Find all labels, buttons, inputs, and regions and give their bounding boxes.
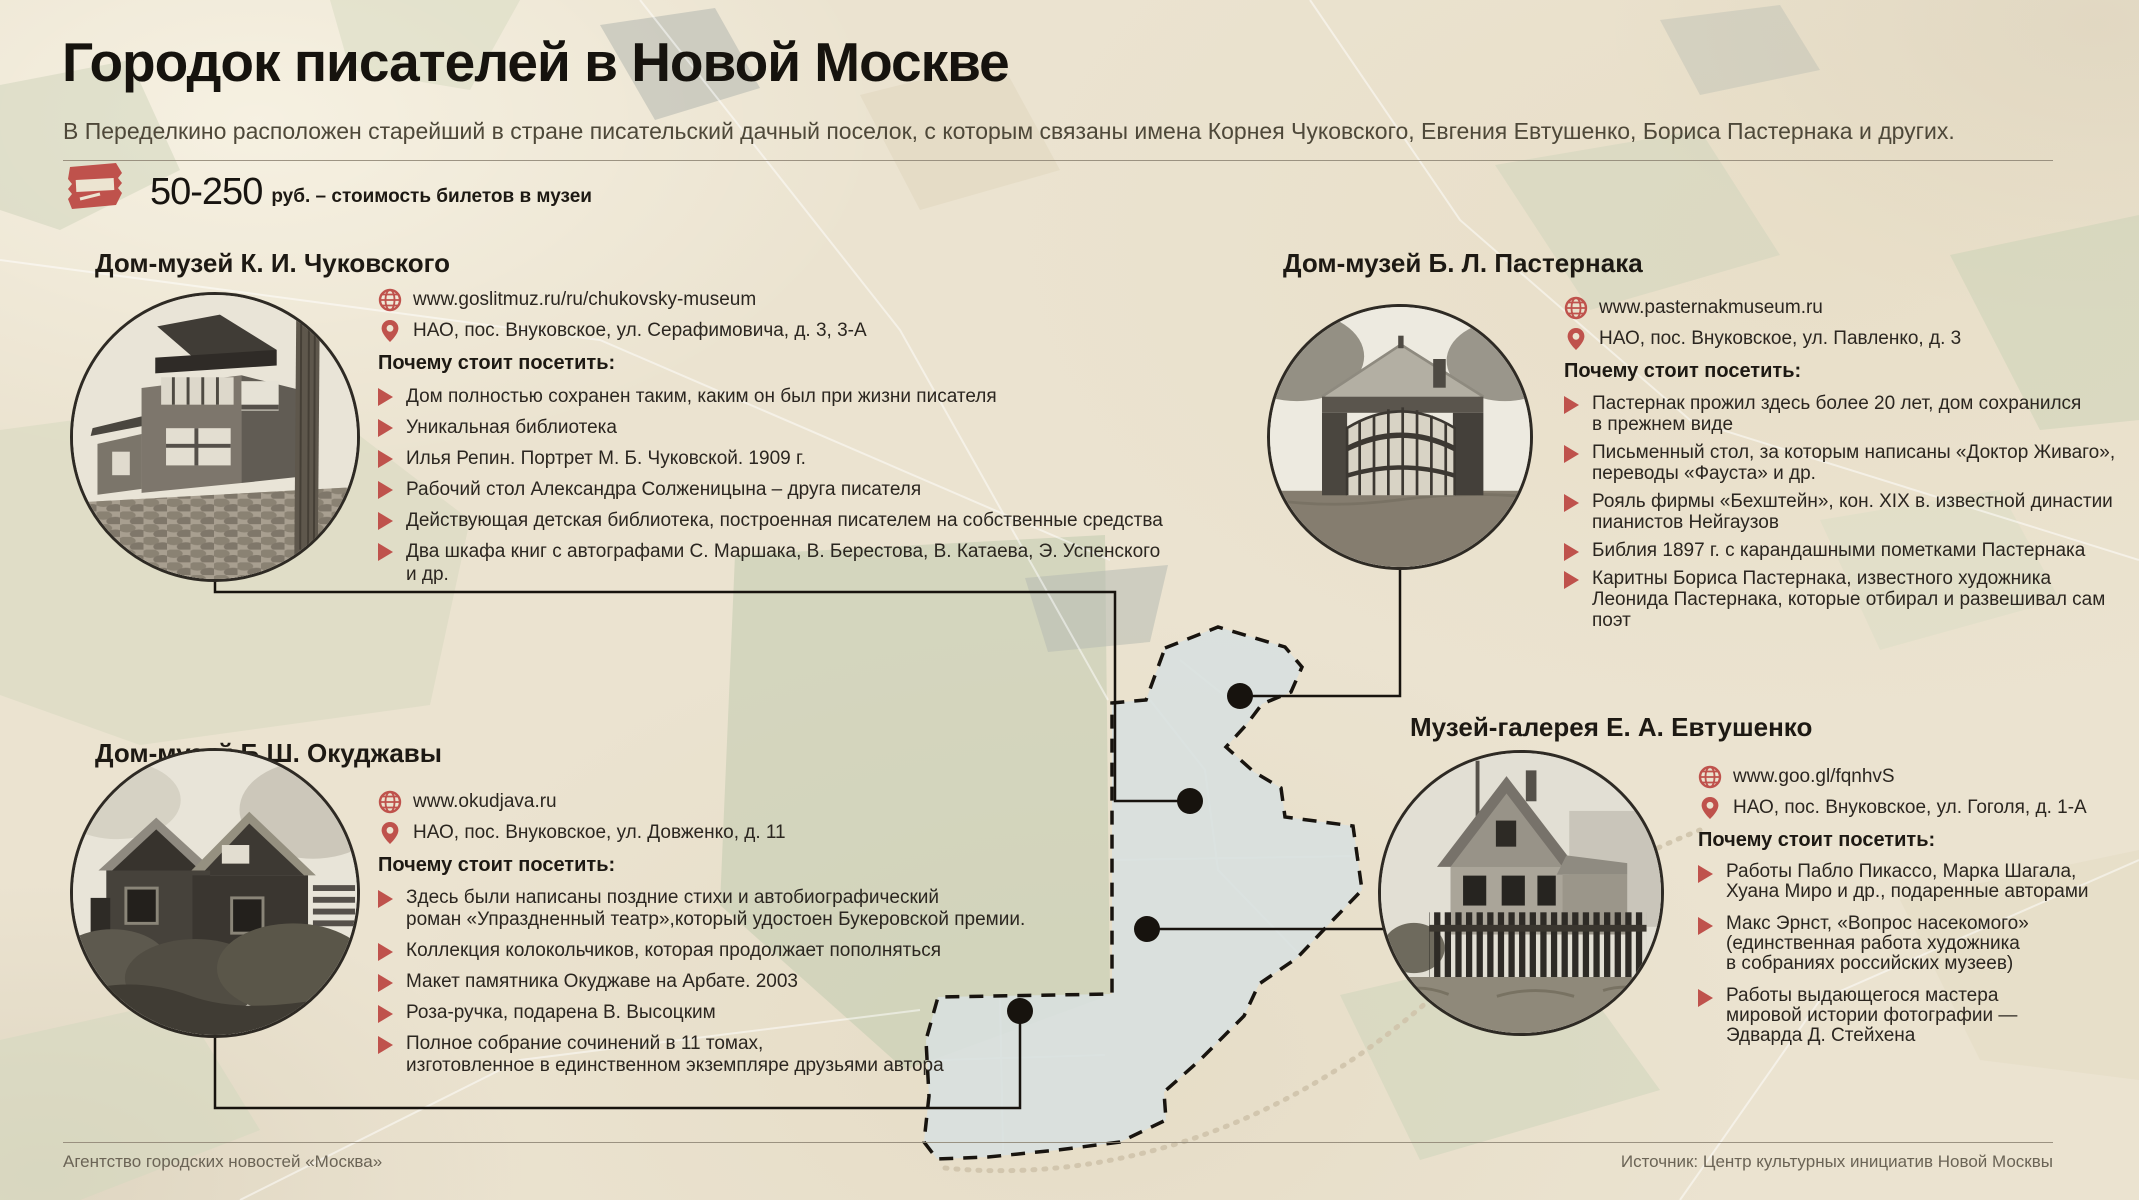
bullet-arrow-icon (1564, 571, 1579, 589)
why-visit-heading: Почему стоит посетить: (1698, 829, 2128, 852)
highlight-item: Работы выдающегося мастера мировой истор… (1698, 986, 2128, 1046)
ticket-price: 50-250 (150, 173, 262, 211)
chukovsky-house-photo (70, 292, 360, 582)
highlights-list: Работы Пабло Пикассо, Марка Шагала, Хуан… (1698, 862, 2128, 1046)
why-visit-heading: Почему стоит посетить: (1564, 360, 2124, 383)
pasternak-house-photo (1267, 304, 1533, 570)
highlight-item: Уникальная библиотека (378, 416, 1168, 439)
globe-icon (378, 790, 402, 814)
bullet-arrow-icon (1564, 543, 1579, 561)
ticket-icon (66, 161, 126, 211)
museum-website[interactable]: www.goo.gl/fqnhvS (1733, 766, 1895, 788)
bullet-arrow-icon (378, 943, 393, 961)
highlights-list: Здесь были написаны поздние стихи и авто… (378, 887, 1078, 1077)
globe-icon (1698, 765, 1722, 789)
bullet-arrow-icon (1564, 445, 1579, 463)
highlight-item: Работы Пабло Пикассо, Марка Шагала, Хуан… (1698, 862, 2128, 902)
globe-icon (378, 288, 402, 312)
bullet-arrow-icon (1698, 917, 1713, 935)
okudzhava-house-photo (70, 748, 360, 1038)
address-row: НАО, пос. Внуковское, ул. Серафимовича, … (378, 319, 1168, 343)
highlight-item: Рояль фирмы «Бехштейн», кон. XIX в. изве… (1564, 491, 2124, 533)
highlight-item: Коллекция колокольчиков, которая продолж… (378, 940, 1078, 962)
highlight-item: Здесь были написаны поздние стихи и авто… (378, 887, 1078, 931)
bullet-arrow-icon (378, 450, 393, 468)
museum-address: НАО, пос. Внуковское, ул. Павленко, д. 3 (1599, 328, 1961, 350)
museum-website[interactable]: www.goslitmuz.ru/ru/chukovsky-museum (413, 289, 756, 311)
bullet-arrow-icon (378, 388, 393, 406)
bullet-arrow-icon (1698, 865, 1713, 883)
globe-icon (1564, 296, 1588, 320)
yevtushenko-house-photo (1378, 750, 1664, 1036)
website-row: www.goo.gl/fqnhvS (1698, 765, 2128, 789)
website-row: www.goslitmuz.ru/ru/chukovsky-museum (378, 288, 1168, 312)
ticket-price-block: 50-250 руб. – стоимость билетов в музеи (66, 161, 592, 211)
highlight-item: Макс Эрнст, «Вопрос насекомого» (единств… (1698, 914, 2128, 974)
footer-divider (63, 1142, 2053, 1143)
page-subtitle: В Переделкино расположен старейший в стр… (63, 118, 2053, 145)
ticket-caption: руб. – стоимость билетов в музеи (271, 186, 592, 211)
museum-title-chukovsky: Дом-музей К. И. Чуковского (95, 248, 450, 279)
address-row: НАО, пос. Внуковское, ул. Довженко, д. 1… (378, 821, 1078, 845)
museum-website[interactable]: www.okudjava.ru (413, 791, 557, 813)
website-row: www.okudjava.ru (378, 790, 1078, 814)
bullet-arrow-icon (378, 512, 393, 530)
highlight-item: Илья Репин. Портрет М. Б. Чуковской. 190… (378, 447, 1168, 470)
website-row: www.pasternakmuseum.ru (1564, 296, 2124, 320)
bullet-arrow-icon (378, 890, 393, 908)
footer-source: Источник: Центр культурных инициатив Нов… (1621, 1152, 2053, 1172)
location-pin-icon (378, 319, 402, 343)
bullet-arrow-icon (378, 419, 393, 437)
bullet-arrow-icon (1564, 494, 1579, 512)
highlights-list: Дом полностью сохранен таким, каким он б… (378, 385, 1168, 586)
museum-address: НАО, пос. Внуковское, ул. Довженко, д. 1… (413, 822, 786, 844)
bullet-arrow-icon (378, 543, 393, 561)
highlight-item: Письменный стол, за которым написаны «До… (1564, 442, 2124, 484)
bullet-arrow-icon (378, 974, 393, 992)
bullet-arrow-icon (378, 1036, 393, 1054)
bullet-arrow-icon (378, 1005, 393, 1023)
highlights-list: Пастернак прожил здесь более 20 лет, дом… (1564, 393, 2124, 631)
highlight-item: Макет памятника Окуджаве на Арбате. 2003 (378, 971, 1078, 993)
highlight-item: Полное собрание сочинений в 11 томах, из… (378, 1033, 1078, 1077)
highlight-item: Два шкафа книг с автографами С. Маршака,… (378, 540, 1168, 586)
location-pin-icon (1564, 327, 1588, 351)
museum-title-yevtushenko: Музей-галерея Е. А. Евтушенко (1410, 712, 1812, 743)
bullet-arrow-icon (378, 481, 393, 499)
museum-website[interactable]: www.pasternakmuseum.ru (1599, 297, 1823, 319)
museum-address: НАО, пос. Внуковское, ул. Гоголя, д. 1-А (1733, 797, 2087, 819)
location-pin-icon (378, 821, 402, 845)
address-row: НАО, пос. Внуковское, ул. Павленко, д. 3 (1564, 327, 2124, 351)
highlight-item: Пастернак прожил здесь более 20 лет, дом… (1564, 393, 2124, 435)
location-pin-icon (1698, 796, 1722, 820)
infographic-canvas: Городок писателей в Новой Москве В Перед… (0, 0, 2139, 1200)
bullet-arrow-icon (1698, 989, 1713, 1007)
museum-address: НАО, пос. Внуковское, ул. Серафимовича, … (413, 320, 867, 342)
address-row: НАО, пос. Внуковское, ул. Гоголя, д. 1-А (1698, 796, 2128, 820)
why-visit-heading: Почему стоит посетить: (378, 352, 1168, 375)
highlight-item: Дом полностью сохранен таким, каким он б… (378, 385, 1168, 408)
highlight-item: Роза-ручка, подарена В. Высоцким (378, 1002, 1078, 1024)
footer-credit: Агентство городских новостей «Москва» (63, 1152, 382, 1172)
page-title: Городок писателей в Новой Москве (62, 30, 1009, 94)
highlight-item: Библия 1897 г. с карандашными пометками … (1564, 540, 2124, 561)
why-visit-heading: Почему стоит посетить: (378, 854, 1078, 877)
museum-title-pasternak: Дом-музей Б. Л. Пастернака (1283, 248, 1643, 279)
highlight-item: Рабочий стол Александра Солженицына – др… (378, 478, 1168, 501)
bullet-arrow-icon (1564, 396, 1579, 414)
highlight-item: Действующая детская библиотека, построен… (378, 509, 1168, 532)
highlight-item: Каритны Бориса Пастернака, известного ху… (1564, 568, 2124, 631)
